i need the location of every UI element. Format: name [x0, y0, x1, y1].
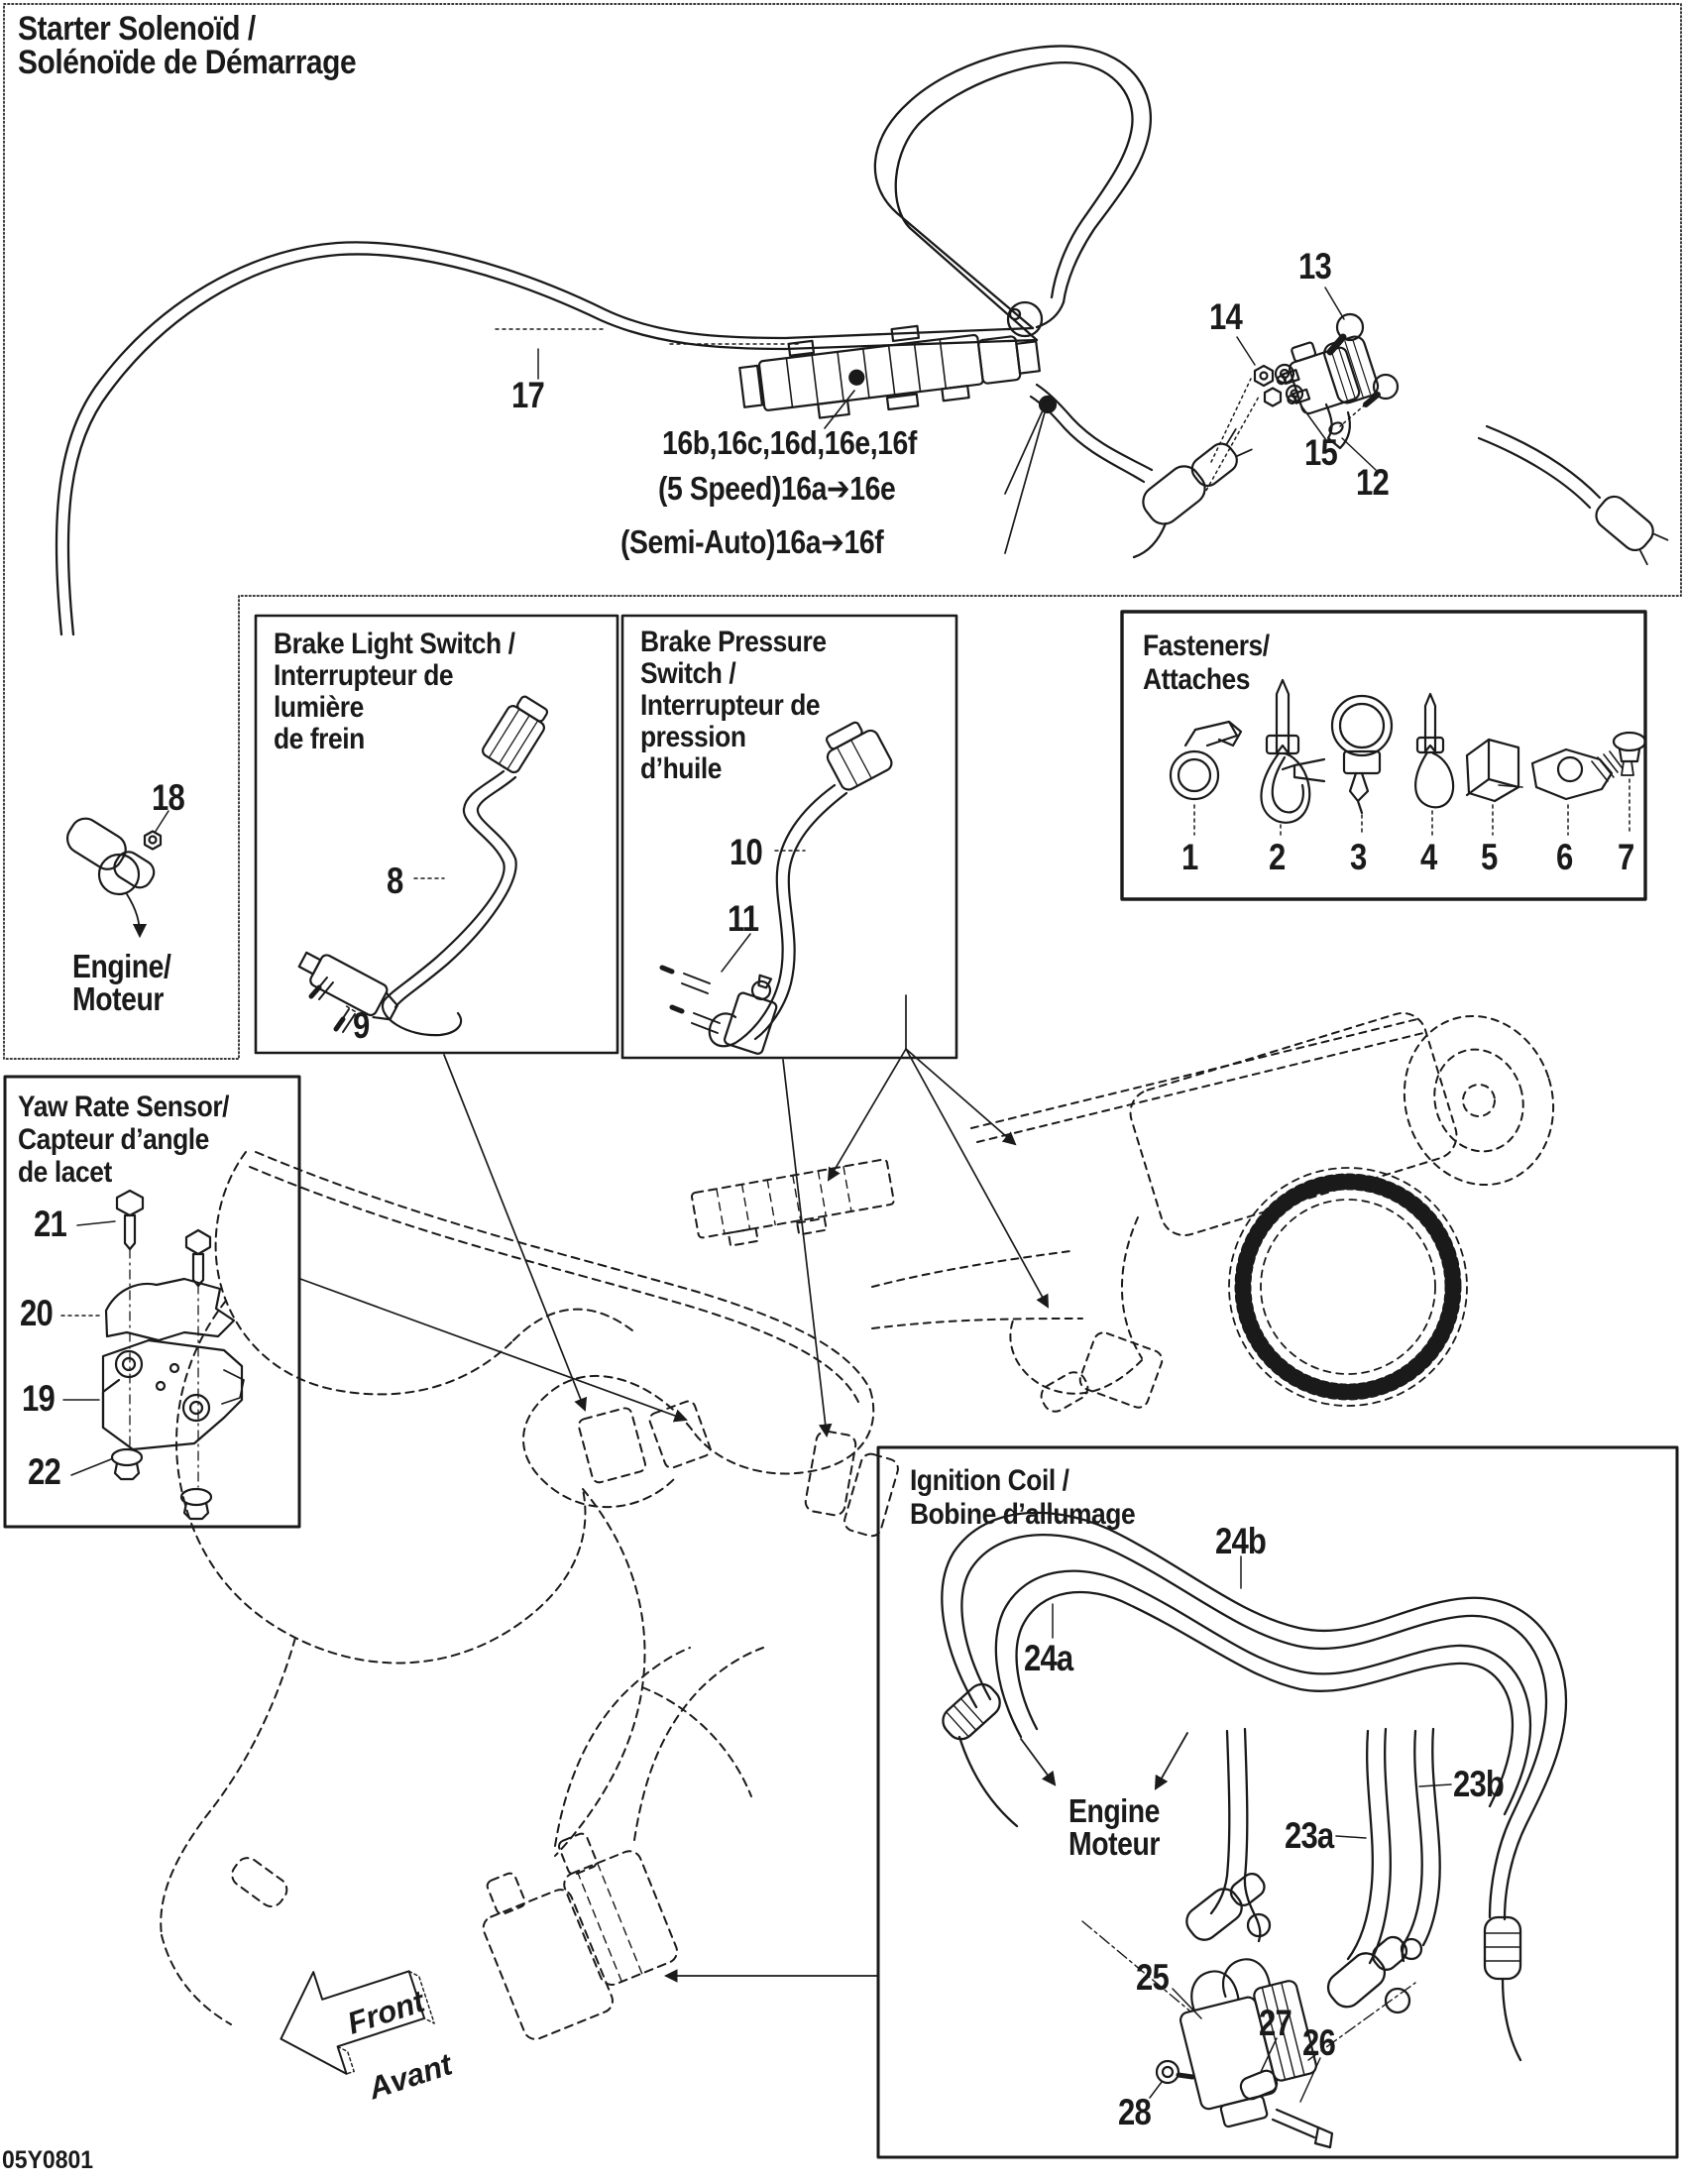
leader-21: [77, 1221, 115, 1225]
callout-16-group: 16b,16c,16d,16e,16f: [662, 426, 917, 460]
diagram-line-art: [0, 0, 1685, 2184]
leader-27: [1261, 2038, 1277, 2072]
callout-25: 25: [1136, 1959, 1169, 1997]
callout-28: 28: [1118, 2094, 1151, 2131]
callout-24a: 24a: [1024, 1640, 1072, 1677]
callout-23a: 23a: [1285, 1817, 1333, 1855]
callout-17: 17: [511, 377, 544, 414]
leader-14: [1237, 337, 1255, 365]
callout-10: 10: [730, 834, 762, 871]
leader-brake-pressure-to-harness: [783, 1060, 827, 1436]
leader-26: [1300, 2058, 1320, 2102]
callout-27: 27: [1259, 2005, 1292, 2042]
leader-22: [71, 1459, 111, 1475]
fastener-number-7: 7: [1618, 839, 1633, 876]
brake-light-switch-body: [294, 946, 403, 1025]
gasket-20: [106, 1279, 234, 1340]
screw-28: [1150, 2061, 1192, 2098]
callout-13: 13: [1298, 248, 1331, 286]
fastener-7-rivet: [1614, 733, 1645, 775]
leader-semiauto: [1005, 412, 1045, 553]
callout-15: 15: [1304, 434, 1337, 472]
leader-16group: [825, 391, 854, 428]
fasteners-title-line2: Attaches: [1143, 664, 1250, 695]
yaw-title-line2: Capteur d’angle: [18, 1124, 209, 1155]
yaw-title-line1: Yaw Rate Sensor/: [18, 1092, 229, 1122]
callout-11: 11: [728, 900, 758, 938]
fastener-2-cable-tie: [1261, 680, 1309, 823]
ignition-title-line1: Ignition Coil /: [910, 1465, 1069, 1496]
page-title-line1: Starter Solenoïd /: [18, 12, 256, 47]
fastener-1-clamp: [1171, 722, 1241, 799]
fastener-number-2: 2: [1269, 839, 1285, 876]
leader-13: [1325, 287, 1344, 319]
leader-23b: [1419, 1784, 1451, 1786]
callout-23b: 23b: [1453, 1766, 1504, 1803]
solenoid-body: [1270, 326, 1381, 421]
fastener-number-5: 5: [1481, 839, 1497, 876]
fastener-number-3: 3: [1350, 839, 1366, 876]
brake-light-title-line4: de frein: [274, 724, 365, 754]
parts-diagram-page: Starter Solenoïd / Solénoïde de Démarrag…: [0, 0, 1685, 2184]
callout-24b: 24b: [1215, 1523, 1266, 1560]
fastener-number-4: 4: [1420, 839, 1436, 876]
bolt-26: [1273, 2058, 1332, 2147]
callout-9: 9: [353, 1007, 369, 1045]
yaw-sensor-art: [61, 1191, 244, 1519]
fastener-number-6: 6: [1556, 839, 1572, 876]
callout-16-5speed: (5 Speed)16a➔16e: [658, 472, 895, 506]
brake-pressure-title-line5: d’huile: [640, 753, 722, 784]
cable-to-front-boot: [1031, 385, 1152, 482]
brake-light-title-line3: lumière: [274, 692, 364, 723]
callout-21: 21: [34, 1206, 66, 1243]
brake-pressure-title-line1: Brake Pressure: [640, 627, 827, 657]
fastener-6-anchor: [1532, 749, 1622, 799]
callout-19: 19: [22, 1380, 55, 1418]
leader-25: [1173, 1989, 1201, 2018]
harness-dashed: [161, 1152, 900, 2042]
ignition-engine-line2: Moteur: [1068, 1827, 1160, 1861]
fastener-leaders: [1194, 779, 1629, 835]
front-arrow-line1: Front: [343, 1982, 435, 2042]
fastener-icons: [1171, 680, 1645, 835]
front-boot: [1134, 379, 1259, 557]
coil-dashed: [464, 1648, 763, 2042]
leader-yaw-to-harness: [300, 1279, 686, 1420]
front-arrow-line2: Avant: [365, 2047, 457, 2108]
brake-light-title-line2: Interrupteur de: [274, 660, 453, 691]
rear-cable-right: [1479, 426, 1669, 564]
brake-pressure-title-line2: Switch /: [640, 658, 735, 689]
brake-pressure-title-line3: Interrupteur de: [640, 690, 820, 721]
bolt-21b: [186, 1230, 210, 1286]
ignition-art: [938, 1513, 1566, 2147]
center-cable-pair: [1181, 1729, 1271, 1945]
leader-11: [722, 934, 750, 972]
fastener-3-tie-mount: [1283, 696, 1392, 813]
sensor-19: [103, 1340, 244, 1449]
cable-23a: [1322, 1729, 1413, 2012]
cable-23b: [1402, 1729, 1440, 1961]
ignition-title-line2: Bobine d’allumage: [910, 1499, 1135, 1530]
leader-23a: [1336, 1836, 1366, 1838]
starter-dashed: [872, 997, 1574, 1416]
engine-label-line1: Engine/: [72, 950, 170, 983]
callout-16-semiauto: (Semi-Auto)16a➔16f: [620, 525, 883, 559]
callout-20: 20: [20, 1295, 53, 1332]
doc-code: 05Y0801: [2, 2147, 93, 2173]
callout-22: 22: [28, 1453, 60, 1491]
ignition-engine-line1: Engine: [1068, 1794, 1160, 1828]
fastener-number-1: 1: [1181, 839, 1197, 876]
leader-28: [1150, 2082, 1162, 2098]
left-cable-tail: [61, 811, 168, 936]
fastener-5-clip: [1467, 740, 1522, 801]
fastener-4-cable-tie-small: [1415, 694, 1453, 807]
brake-pressure-switch-body: [724, 971, 785, 1055]
fasteners-title-line1: Fasteners/: [1143, 631, 1270, 661]
callout-26: 26: [1302, 2024, 1335, 2062]
spark-cable-24a: [996, 1571, 1530, 1814]
leader-5speed: [1005, 410, 1043, 494]
yaw-title-line3: de lacet: [18, 1157, 112, 1188]
callout-14: 14: [1209, 298, 1242, 336]
brake-light-title-line1: Brake Light Switch /: [274, 629, 515, 659]
callout-8: 8: [387, 862, 402, 900]
engine-arrow: [127, 894, 140, 936]
callout-18: 18: [152, 779, 184, 817]
nut-18: [145, 832, 161, 850]
engine-arrow-right: [1156, 1733, 1187, 1788]
page-title-line2: Solénoïde de Démarrage: [18, 46, 356, 80]
callout-12: 12: [1356, 464, 1389, 502]
coil-axis-lines: [1082, 1921, 1415, 2060]
bolt-21: [117, 1191, 143, 1249]
engine-label-line2: Moteur: [72, 982, 164, 1016]
brake-pressure-title-line4: pression: [640, 722, 746, 752]
engine-arrow-left: [1021, 1739, 1055, 1784]
grommet-22a: [112, 1449, 142, 1479]
